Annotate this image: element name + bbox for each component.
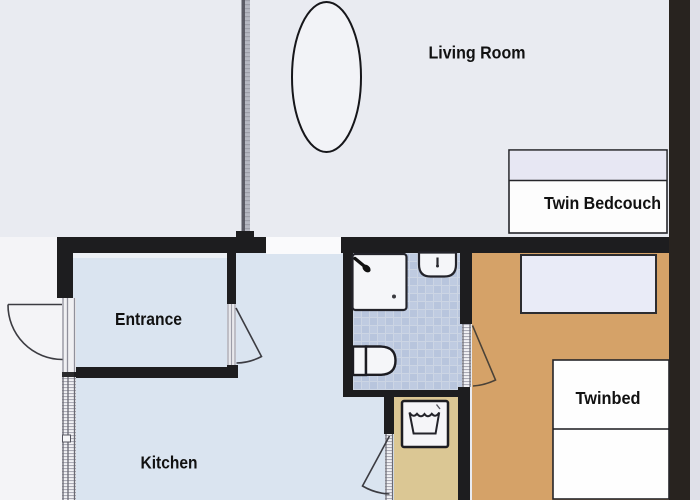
svg-text:Entrance: Entrance — [115, 309, 182, 329]
svg-text:Living Room: Living Room — [429, 43, 526, 63]
svg-text:Twin Bedcouch: Twin Bedcouch — [544, 193, 661, 213]
svg-text:Kitchen: Kitchen — [141, 453, 198, 473]
svg-text:Twinbed: Twinbed — [576, 388, 641, 408]
